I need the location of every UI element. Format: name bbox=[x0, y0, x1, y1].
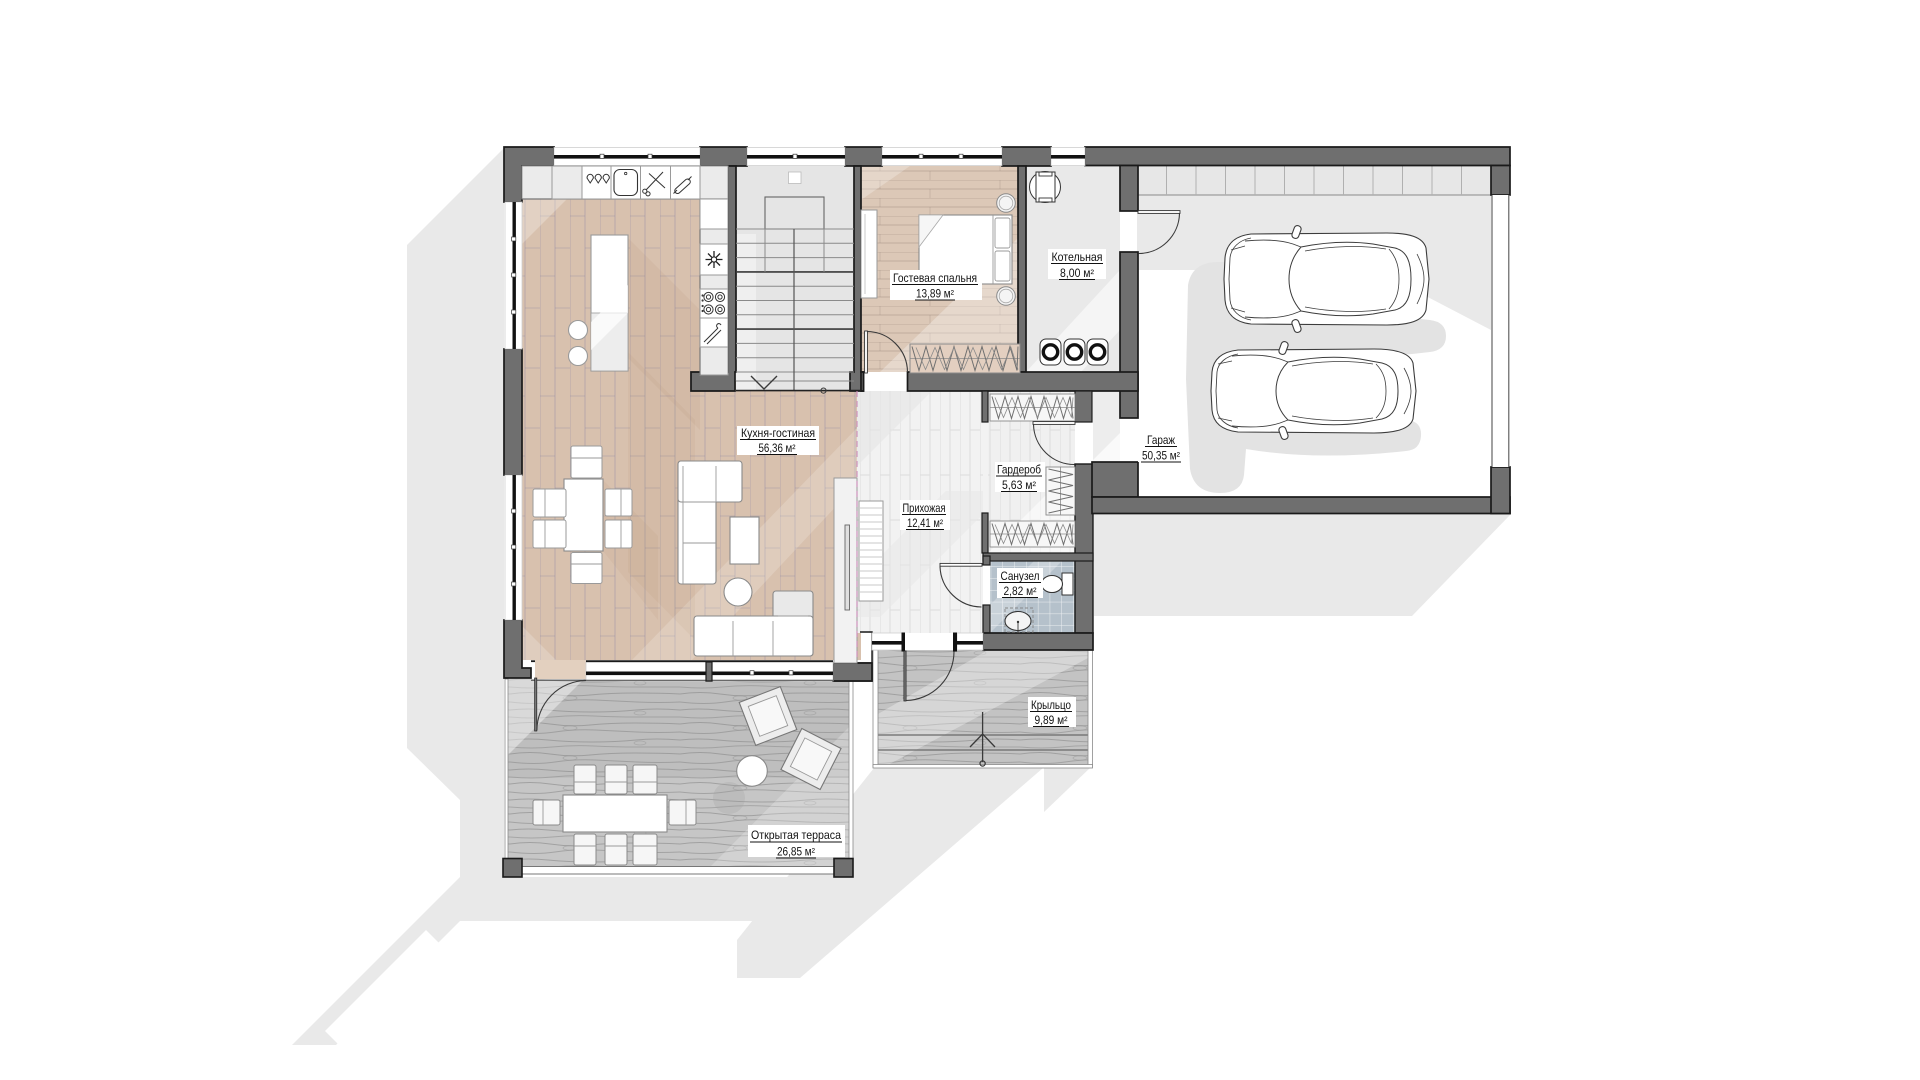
svg-text:9,89 м²: 9,89 м² bbox=[1035, 714, 1068, 727]
svg-text:26,85 м²: 26,85 м² bbox=[777, 846, 815, 859]
svg-text:Кухня-гостиная: Кухня-гостиная bbox=[741, 427, 815, 440]
svg-text:Санузел: Санузел bbox=[1001, 570, 1040, 583]
svg-text:8,00 м²: 8,00 м² bbox=[1060, 267, 1094, 280]
svg-text:13,89 м²: 13,89 м² bbox=[916, 288, 954, 301]
svg-text:Гостевая спальня: Гостевая спальня bbox=[893, 272, 977, 285]
svg-text:Гардероб: Гардероб bbox=[997, 464, 1041, 477]
svg-text:Открытая терраса: Открытая терраса bbox=[751, 829, 841, 842]
svg-text:50,35 м²: 50,35 м² bbox=[1142, 450, 1180, 463]
svg-text:Прихожая: Прихожая bbox=[903, 502, 946, 515]
svg-text:56,36 м²: 56,36 м² bbox=[759, 442, 796, 455]
svg-text:2,82 м²: 2,82 м² bbox=[1004, 585, 1037, 598]
svg-text:5,63 м²: 5,63 м² bbox=[1002, 479, 1036, 492]
svg-text:Котельная: Котельная bbox=[1052, 251, 1103, 264]
svg-text:12,41 м²: 12,41 м² bbox=[907, 517, 943, 530]
svg-text:Крыльцо: Крыльцо bbox=[1031, 699, 1071, 712]
svg-text:Гараж: Гараж bbox=[1147, 434, 1175, 447]
